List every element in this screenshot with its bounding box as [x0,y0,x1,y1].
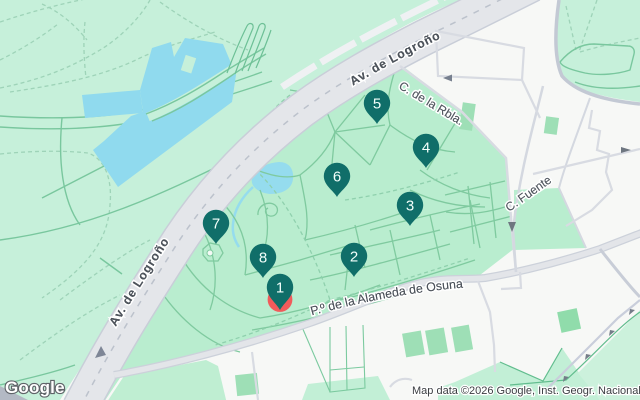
svg-text:7: 7 [212,216,220,233]
svg-text:8: 8 [259,250,267,267]
svg-text:2: 2 [350,249,358,266]
svg-text:Map data ©2026 Google, Inst. G: Map data ©2026 Google, Inst. Geogr. Naci… [412,385,640,397]
svg-text:5: 5 [373,96,381,113]
svg-text:1: 1 [276,280,284,297]
svg-text:3: 3 [406,198,414,215]
svg-text:4: 4 [422,140,430,157]
svg-text:6: 6 [333,169,341,186]
svg-text:Google: Google [5,378,65,397]
